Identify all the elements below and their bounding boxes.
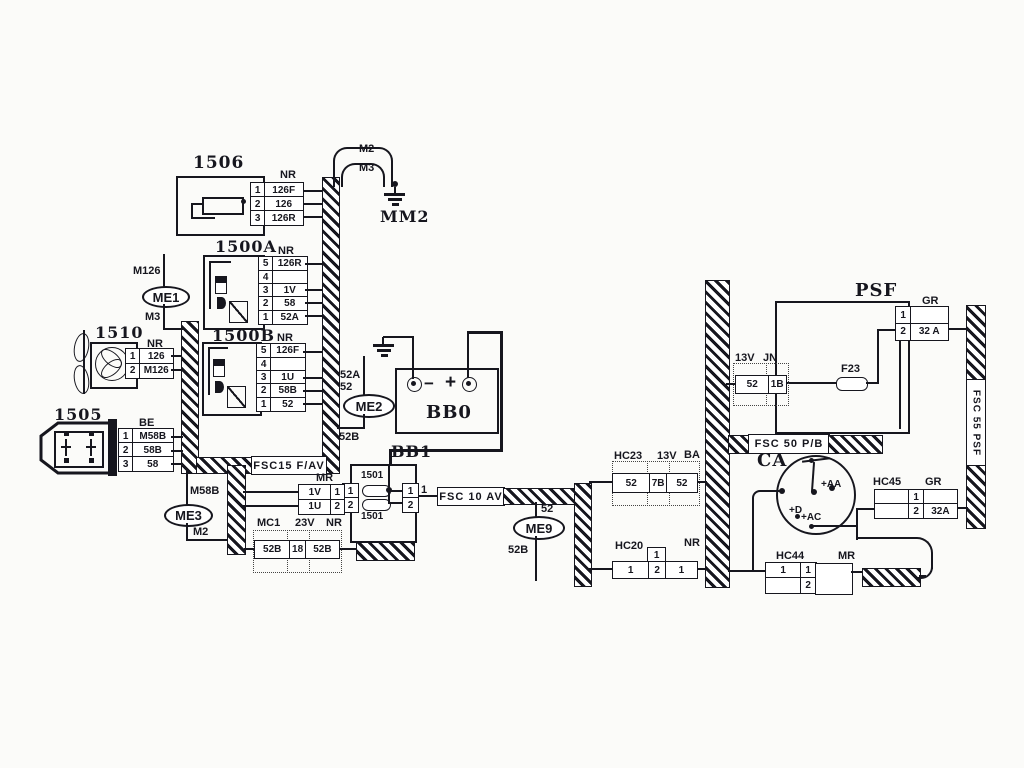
ground-bar: [381, 354, 388, 357]
harness-bus-me9: [574, 483, 592, 587]
wire-label-bb1-out: 1: [421, 484, 427, 496]
wire-me1-bottom: [163, 304, 165, 330]
conn-hc44-name: HC44: [776, 550, 804, 562]
harness-bus-main: [322, 177, 340, 474]
wire-label-52-me9: 52: [541, 503, 553, 515]
earth-me9-label: ME9: [526, 521, 553, 536]
wire: [851, 571, 862, 573]
wire: [589, 481, 613, 483]
battery-plus-sign: +: [445, 372, 456, 394]
psf-title: PSF: [855, 280, 897, 301]
wire: [243, 505, 299, 507]
wire-batt-plus: [467, 332, 469, 378]
wire: [244, 548, 255, 550]
wire-me9-bottom: [535, 536, 537, 581]
component-1510-title: 1510: [95, 323, 144, 342]
conn-hc44-code: MR: [838, 550, 855, 562]
ground-bar: [384, 193, 405, 196]
horn-symbol: [215, 381, 224, 393]
wire-me3-bend: [186, 539, 228, 541]
splice-mc1-code: 23V: [295, 517, 315, 529]
component-1500A-title: 1500A: [215, 237, 277, 256]
wire-name: 32 A: [910, 323, 949, 341]
wire-label-m2: M2: [359, 143, 374, 155]
wire-label-52b-me9: 52B: [508, 544, 528, 556]
wire-name: M126: [139, 363, 174, 379]
splice-jn-row: 52 1B: [736, 376, 786, 393]
ground-bar: [377, 349, 391, 352]
earth-me3-label: ME3: [175, 508, 202, 523]
earth-me2-label: ME2: [356, 399, 383, 414]
bb1-link: [388, 502, 403, 504]
terminal-dot: [466, 381, 471, 386]
wire: [303, 216, 322, 218]
wire: [171, 463, 183, 465]
wire-label-m58b: M58B: [190, 485, 219, 497]
wire-name: 52: [612, 473, 650, 493]
earth-me1-label: ME1: [153, 290, 180, 305]
earth-me1: ME1: [142, 286, 190, 308]
terminal-dot: [811, 489, 817, 495]
bb1-connector-left: 1 2: [343, 484, 358, 512]
wire: [171, 450, 183, 452]
conn-mr-code: MR: [316, 472, 333, 484]
fuse-1501-bottom-label: 1501: [361, 511, 383, 522]
wire-label-52b: 52B: [339, 431, 359, 443]
conn-1505-code: BE: [139, 417, 154, 429]
wire: [303, 377, 322, 379]
symbol-wire: [209, 261, 211, 309]
wire: [305, 289, 322, 291]
horn-symbol: [217, 297, 226, 309]
wire-name: 52B: [305, 540, 340, 559]
wire-me1-top: [163, 254, 165, 287]
connector-1500B: 5126F 4 31U 258B 152: [257, 344, 305, 411]
wire: [171, 436, 183, 438]
pin: 1B: [768, 375, 787, 394]
wire: [303, 351, 322, 353]
earth-me2: ME2: [343, 394, 395, 418]
symbol-wire: [209, 261, 231, 263]
wire: [305, 315, 322, 317]
symbol-wire: [208, 347, 228, 349]
splice-mc1-conn: NR: [326, 517, 342, 529]
wire-label-m126: M126: [133, 265, 161, 277]
conn-hc20-code: NR: [684, 537, 700, 549]
wire-name: 126R: [264, 210, 304, 226]
pump-symbol: [213, 359, 225, 377]
wire-label-52: 52: [340, 381, 352, 393]
fsc10-label: FSC 10 AV: [439, 491, 502, 503]
earth-me9: ME9: [513, 516, 565, 540]
contact-bar: [86, 446, 96, 448]
splice-hc23-conn: BA: [684, 449, 700, 461]
wire: [305, 263, 322, 265]
fsc15-label: FSC15 F/AV: [253, 460, 325, 472]
wire-name: 52: [270, 397, 306, 412]
pin: 18: [289, 540, 307, 559]
contact-dot: [64, 431, 69, 436]
component-1506-title: 1506: [193, 153, 244, 173]
wire: [303, 390, 322, 392]
wire-name: 58: [132, 456, 174, 472]
wire: [339, 548, 356, 550]
pin: 2: [330, 499, 345, 515]
fsc55-label: FSC 55 PSF: [971, 389, 982, 455]
splice-mc1-name: MC1: [257, 517, 280, 529]
wire: [171, 369, 182, 371]
conn-1500B-code: NR: [277, 332, 293, 344]
wire-name: 1U: [298, 499, 331, 515]
harness-fsc50-right: [828, 435, 883, 454]
propeller-blade: [72, 332, 92, 363]
wire-batt-top: [467, 331, 503, 334]
wire: [948, 328, 966, 330]
wire-name: [765, 577, 801, 594]
ground-bar: [388, 198, 402, 201]
wire-ac-junction: [856, 508, 858, 540]
wire-to-hc45: [856, 508, 876, 510]
ground-bar: [392, 203, 399, 206]
connector-1500A: 5126R 4 31V 258 152A: [259, 257, 307, 324]
bb1-connector-right: 1 2: [403, 484, 418, 512]
wire-ca-down: [752, 500, 754, 572]
contact-bar: [61, 446, 71, 448]
connector-gr-psf: 1 232 A: [896, 307, 948, 340]
ground-mm2-label: MM2: [380, 207, 430, 226]
wire-label-m3: M3: [145, 311, 160, 323]
connector-hc45: 1 232A: [875, 490, 957, 518]
wire: [303, 190, 322, 192]
wire-name: 1: [665, 561, 698, 579]
relay-symbol: [202, 197, 244, 215]
conn-1500A-code: NR: [278, 245, 294, 257]
wire: [726, 383, 736, 385]
wire-name: 52: [666, 473, 698, 493]
fuse-1501-top-label: 1501: [361, 470, 383, 481]
pin: 2: [648, 561, 667, 579]
earth-me3: ME3: [164, 504, 213, 527]
pump-symbol: [215, 276, 227, 294]
ca-title: CA: [757, 450, 787, 471]
terminal-dot: [411, 381, 416, 386]
wire-name: 52: [735, 375, 769, 394]
wire-gnd-h: [383, 336, 414, 338]
wiring-diagram: FSC15 F/AV FSC 10 AV FSC 50 P/B FSC 55 P…: [0, 0, 1024, 768]
switch-contact-box: [54, 431, 104, 468]
wire: [697, 568, 707, 570]
wire-label-m2b: M2: [193, 526, 208, 538]
wire-1506-a: [193, 203, 202, 205]
harness-bus-mr: [227, 465, 246, 555]
fuse-f23: [836, 377, 868, 391]
pin: 7B: [649, 473, 668, 493]
connector-mr: 1V1 1U2: [299, 485, 344, 514]
wire-f23-left: [786, 382, 836, 384]
wire-batt-right: [500, 331, 503, 452]
wire-hc20-hc44: [728, 570, 768, 572]
fusebox-bb1-label: BB1: [391, 442, 432, 461]
splice-mc1-row: 52B 18 52B: [255, 541, 339, 558]
wire-name: 52A: [272, 310, 308, 325]
harness-bus-center: [705, 280, 730, 588]
bb1-link: [390, 490, 403, 492]
wire-me3-top: [186, 471, 188, 505]
terminal-ac-label: +AC: [801, 512, 821, 523]
propeller-blade: [72, 364, 92, 395]
conn-gr-psf-code: GR: [922, 295, 939, 307]
contact-dot: [89, 431, 94, 436]
fuse-f23-label: F23: [841, 363, 860, 375]
wire-label-m3: M3: [359, 162, 374, 174]
wire-me2-bend: [337, 427, 365, 429]
fsc10-label-box: FSC 10 AV: [437, 487, 505, 506]
wire-ac-out: [812, 525, 858, 527]
switch-mount-bar: [108, 419, 117, 476]
battery-bb0-label: BB0: [426, 402, 472, 423]
wire-f23-up: [877, 330, 879, 384]
fuse-1501-bottom: [362, 499, 391, 511]
wire: [243, 491, 299, 493]
psf-internal: [899, 340, 901, 429]
wire-f23-top: [877, 329, 896, 331]
wire-name: 1: [612, 561, 649, 579]
wire: [957, 507, 968, 509]
connector-1506: 1126F 2126 3126R: [251, 183, 303, 225]
wire-1506-c: [191, 217, 215, 219]
battery-minus-sign: −: [424, 374, 434, 394]
connector-1510: 1126 2M126: [126, 349, 173, 378]
harness-hc44-right: [862, 568, 921, 587]
wire: [589, 568, 613, 570]
wire: [305, 302, 322, 304]
wire: [303, 203, 322, 205]
ground-stem: [382, 337, 384, 344]
conn-hc45-code: GR: [925, 476, 942, 488]
wire: [171, 355, 182, 357]
wire-me9-top: [535, 502, 537, 517]
splice-hc23-row: 52 7B 52: [613, 474, 697, 492]
wire-loop-bottom: [916, 555, 933, 579]
resistor-symbol: [229, 301, 248, 323]
bb1-feed: [388, 466, 390, 489]
wire-label-52a: 52A: [340, 369, 360, 381]
ignition-switch-circle: [776, 455, 856, 535]
hc44-right-cell: [815, 563, 853, 595]
terminal-aa-label: +AA: [821, 479, 841, 490]
fsc50-label: FSC 50 P/B: [755, 438, 824, 450]
ground-bar: [373, 344, 394, 347]
conn-hc45-name: HC45: [873, 476, 901, 488]
conn-hc20-row: 1 2 1: [613, 562, 697, 578]
pin: 2: [402, 497, 419, 513]
harness-mc1-right: [356, 542, 415, 561]
harness-bus-left: [181, 321, 199, 474]
conn-1506-code: NR: [280, 169, 296, 181]
wire-name: 32A: [923, 503, 958, 519]
wire-name: 52B: [254, 540, 290, 559]
fsc55-label-box: FSC 55 PSF: [966, 379, 986, 466]
wire: [697, 481, 707, 483]
wire-name: [910, 306, 949, 324]
wire-name: [874, 503, 909, 519]
terminal-dot: [809, 458, 814, 463]
conn-hc20-name: HC20: [615, 540, 643, 552]
wire: [303, 403, 322, 405]
wire-me1-bend: [163, 328, 184, 330]
contact-dot: [241, 199, 246, 204]
contact-dot: [64, 458, 69, 463]
symbol-wire: [208, 348, 210, 395]
wire-me2-top: [363, 356, 365, 395]
contact-dot: [89, 458, 94, 463]
connector-1505: 1M58B 258B 358: [119, 429, 173, 471]
resistor-symbol: [227, 386, 246, 408]
